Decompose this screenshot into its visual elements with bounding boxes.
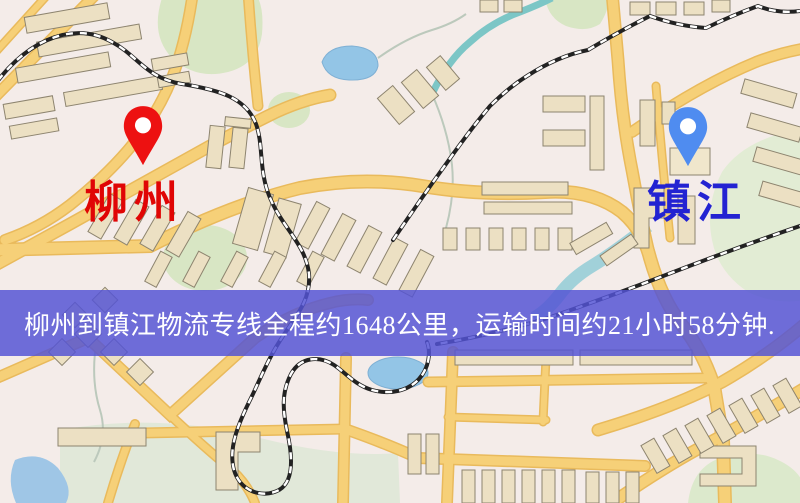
map-background — [0, 0, 800, 503]
route-info-text: 柳州到镇江物流专线全程约1648公里，运输时间约21小时58分钟. — [0, 305, 775, 342]
origin-marker[interactable] — [120, 103, 166, 169]
pin-body — [669, 107, 707, 166]
destination-pin-icon — [665, 104, 711, 170]
route-info-banner: 柳州到镇江物流专线全程约1648公里，运输时间约21小时58分钟. — [0, 290, 800, 356]
origin-label: 柳州 — [84, 181, 184, 225]
pin-body — [124, 106, 162, 165]
origin-pin-icon — [120, 103, 166, 169]
pin-hole — [135, 117, 151, 133]
logistics-map-view: 柳州 镇江 柳州到镇江物流专线全程约1648公里，运输时间约21小时58分钟. — [0, 0, 800, 503]
pin-hole — [680, 118, 696, 134]
destination-marker[interactable] — [665, 104, 711, 170]
destination-label: 镇江 — [647, 181, 747, 225]
